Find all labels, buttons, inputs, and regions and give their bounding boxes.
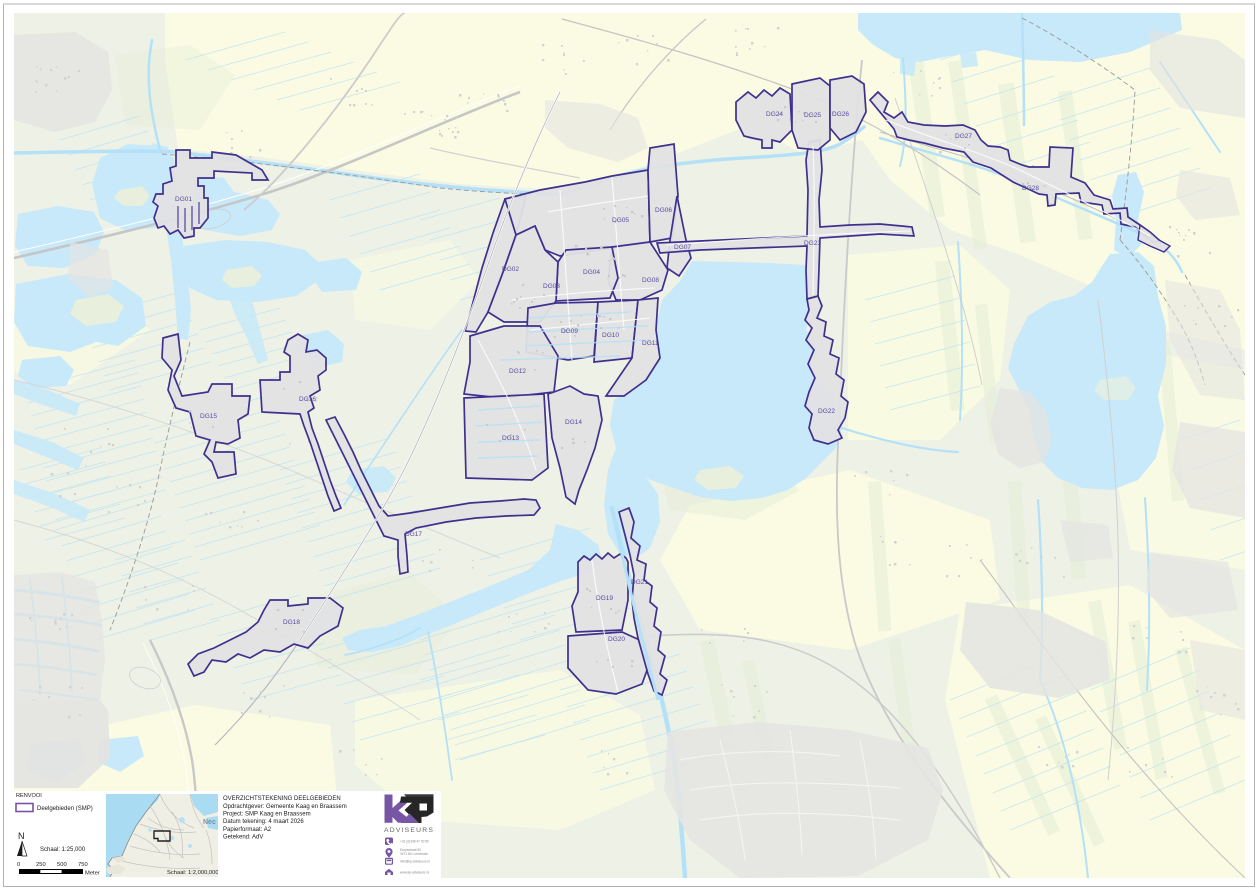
svg-text:DG22: DG22: [818, 408, 835, 415]
svg-text:+31 (0)348 47 00 50: +31 (0)348 47 00 50: [400, 840, 429, 844]
svg-text:DG12: DG12: [509, 368, 526, 375]
svg-text:DG20: DG20: [608, 636, 625, 643]
svg-text:DG03: DG03: [543, 283, 560, 290]
svg-text:Deelgebieden (SMP): Deelgebieden (SMP): [37, 806, 93, 812]
svg-text:DG14: DG14: [565, 419, 582, 426]
svg-text:DG09: DG09: [561, 328, 578, 335]
svg-text:DG11: DG11: [642, 340, 659, 347]
svg-text:Project: SMP Kaag en Braassem: Project: SMP Kaag en Braassem: [223, 812, 311, 818]
svg-text:DG08: DG08: [642, 277, 659, 284]
svg-text:DG07: DG07: [674, 244, 691, 251]
svg-text:250: 250: [36, 862, 46, 868]
svg-text:DG06: DG06: [655, 207, 672, 214]
svg-text:500: 500: [57, 862, 67, 868]
svg-text:DG18: DG18: [283, 619, 300, 626]
svg-text:Datum tekening: 4 maart 2026: Datum tekening: 4 maart 2026: [223, 819, 304, 825]
svg-text:RENVOOI: RENVOOI: [16, 793, 42, 799]
svg-text:DG26: DG26: [832, 111, 849, 118]
svg-text:DG23: DG23: [804, 240, 821, 247]
svg-text:OVERZICHTSTEKENING DEELGEBIEDE: OVERZICHTSTEKENING DEELGEBIEDEN: [223, 796, 341, 802]
svg-text:Getekend: AdV: Getekend: AdV: [223, 834, 263, 840]
svg-text:DG21: DG21: [631, 579, 648, 586]
svg-text:DG01: DG01: [175, 196, 192, 203]
svg-text:N: N: [18, 831, 25, 841]
svg-text:DG27: DG27: [955, 133, 972, 140]
svg-text:DG17: DG17: [405, 531, 422, 538]
svg-text:3471 NG Leerbroek: 3471 NG Leerbroek: [400, 852, 428, 856]
svg-text:DG02: DG02: [502, 266, 519, 273]
svg-text:Meter: Meter: [85, 871, 100, 877]
svg-text:DG15: DG15: [200, 413, 217, 420]
svg-text:info@kp-adviseurs.nl: info@kp-adviseurs.nl: [400, 860, 430, 864]
svg-text:Nec: Nec: [203, 819, 216, 826]
svg-text:www.kp-adviseurs.nl: www.kp-adviseurs.nl: [400, 871, 429, 875]
svg-text:Schaal: 1:2,000,000: Schaal: 1:2,000,000: [167, 870, 219, 876]
svg-text:DG10: DG10: [602, 332, 619, 339]
svg-text:DG25: DG25: [804, 112, 821, 119]
svg-text:750: 750: [78, 862, 88, 868]
svg-text:DG16: DG16: [299, 396, 316, 403]
svg-text:Papierformaat: A2: Papierformaat: A2: [223, 827, 272, 833]
svg-text:ADVISEURS: ADVISEURS: [384, 827, 434, 834]
svg-text:Schaal: 1:25,000: Schaal: 1:25,000: [40, 847, 86, 853]
svg-text:DG13: DG13: [502, 435, 519, 442]
svg-text:DG19: DG19: [596, 595, 613, 602]
svg-text:0: 0: [17, 862, 20, 868]
svg-text:DG28: DG28: [1022, 185, 1039, 192]
svg-text:DG24: DG24: [766, 111, 783, 118]
svg-text:Opdrachtgever: Gemeente Kaag e: Opdrachtgever: Gemeente Kaag en Braassem: [223, 804, 347, 810]
svg-text:DG04: DG04: [583, 269, 600, 276]
svg-text:DG05: DG05: [612, 217, 629, 224]
